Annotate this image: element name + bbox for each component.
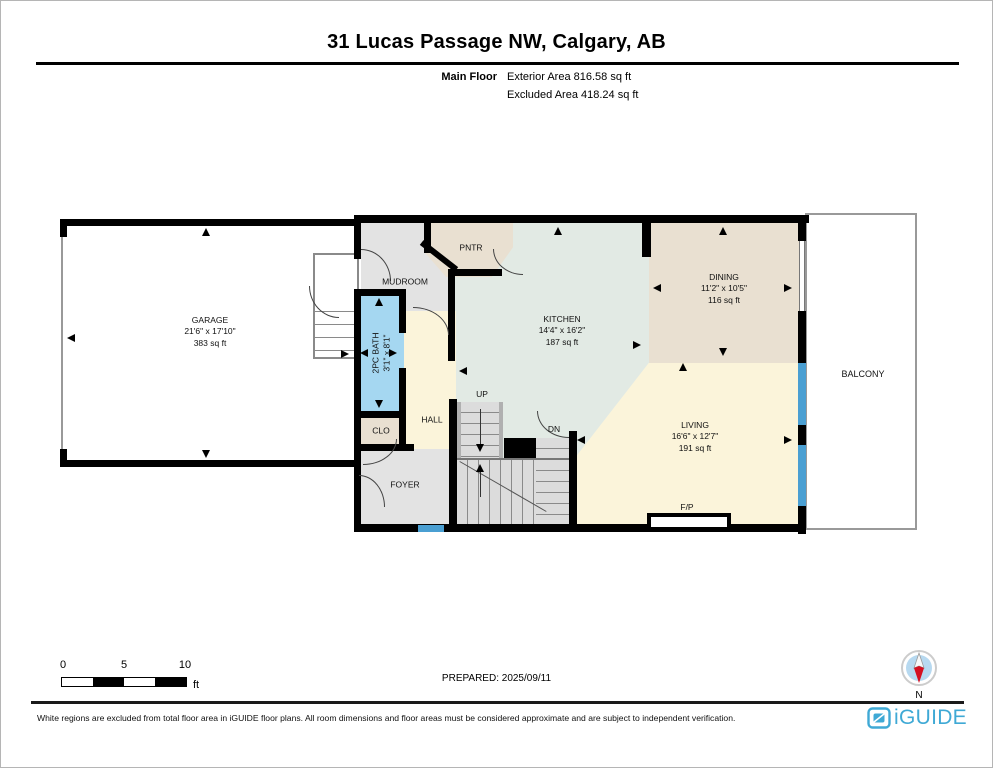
stairs-lower-flight [457, 460, 536, 524]
dimension-arrow [719, 348, 727, 356]
stair-dn-arrow-line [480, 471, 481, 497]
wall-bath-right-lower [399, 368, 406, 418]
label-hall: HALL [421, 414, 442, 425]
floor-name: Main Floor [301, 71, 497, 83]
wall-closet-right [399, 418, 406, 446]
prepared-date: PREPARED: 2025/09/11 [1, 673, 992, 684]
stair-dn-arrow-icon [476, 464, 484, 472]
wall-pantry-bottom [450, 269, 502, 276]
compass-icon [900, 649, 938, 687]
dimension-arrow [375, 400, 383, 408]
wall-bath-right-upper [399, 289, 406, 333]
label-fireplace: F/P [680, 502, 693, 512]
wall-garage-left-stub-top [60, 219, 67, 237]
footer-disclaimer: White regions are excluded from total fl… [37, 713, 735, 723]
dimension-arrow [459, 367, 467, 375]
dimension-arrow [679, 363, 687, 371]
dimension-arrow [67, 334, 75, 342]
dimension-arrow [389, 349, 397, 357]
compass-north-label: N [900, 690, 938, 701]
wall-garage-bottom [60, 460, 360, 467]
wall-right-mid2 [798, 425, 806, 445]
compass: N [900, 649, 938, 701]
label-mudroom: MUDROOM [382, 276, 428, 287]
dimension-arrow [341, 350, 349, 358]
wall-stair-right [569, 431, 577, 532]
wall-garage-left-stub-bottom [60, 449, 67, 467]
garage-door-line [61, 237, 63, 449]
window-dining-slider [799, 241, 805, 311]
wall-right-top [798, 215, 806, 241]
title-divider [36, 62, 959, 65]
stairs-down-flight [536, 438, 569, 524]
footer-divider [31, 701, 964, 704]
dimension-arrow [784, 284, 792, 292]
scale-tick-0: 0 [60, 659, 66, 671]
scale-tick-10: 10 [179, 659, 191, 671]
window-living-lower [798, 445, 806, 506]
label-dining: DINING 11'2" x 10'5" 116 sq ft [701, 272, 747, 306]
dimension-arrow [202, 228, 210, 236]
wall-house-top [354, 215, 809, 223]
wall-garage-top [60, 219, 360, 226]
exterior-area: Exterior Area 816.58 sq ft [507, 71, 631, 83]
dimension-arrow [653, 284, 661, 292]
dimension-arrow [633, 341, 641, 349]
brand-logo: iGUIDE [867, 706, 967, 730]
wall-kitchen-dining-stub [642, 223, 651, 257]
dimension-arrow [360, 349, 368, 357]
fireplace-box [647, 513, 731, 531]
label-pantry: PNTR [459, 242, 482, 253]
dimension-arrow [719, 227, 727, 235]
dimension-arrow [202, 450, 210, 458]
label-balcony: BALCONY [841, 368, 884, 380]
label-garage: GARAGE 21'6" x 17'10" 383 sq ft [184, 315, 235, 349]
stair-rail [457, 458, 569, 460]
stair-up-arrow-icon [476, 444, 484, 452]
label-foyer: FOYER [390, 479, 419, 490]
wall-kitchen-left [448, 269, 455, 361]
dimension-arrow [554, 227, 562, 235]
label-up: UP [476, 389, 488, 399]
brand-name: iGUIDE [894, 706, 967, 730]
wall-right-mid1 [798, 311, 806, 363]
floorplan-page: 31 Lucas Passage NW, Calgary, AB Main Fl… [0, 0, 993, 768]
excluded-area: Excluded Area 418.24 sq ft [507, 89, 638, 101]
label-dn: DN [548, 424, 560, 434]
window-living-upper [798, 363, 806, 425]
stair-up-arrow-line [480, 409, 481, 445]
label-living: LIVING 16'6" x 12'7" 191 sq ft [672, 420, 719, 454]
label-kitchen: KITCHEN 14'4" x 16'2" 187 sq ft [539, 314, 586, 348]
dimension-arrow [577, 436, 585, 444]
window-foyer [418, 525, 444, 532]
dimension-arrow [375, 298, 383, 306]
wall-stair-left [449, 399, 457, 532]
dimension-arrow [784, 436, 792, 444]
label-closet: CLO [372, 425, 389, 436]
iguide-logo-icon [867, 706, 891, 730]
scale-tick-5: 5 [121, 659, 127, 671]
page-title: 31 Lucas Passage NW, Calgary, AB [1, 31, 992, 54]
